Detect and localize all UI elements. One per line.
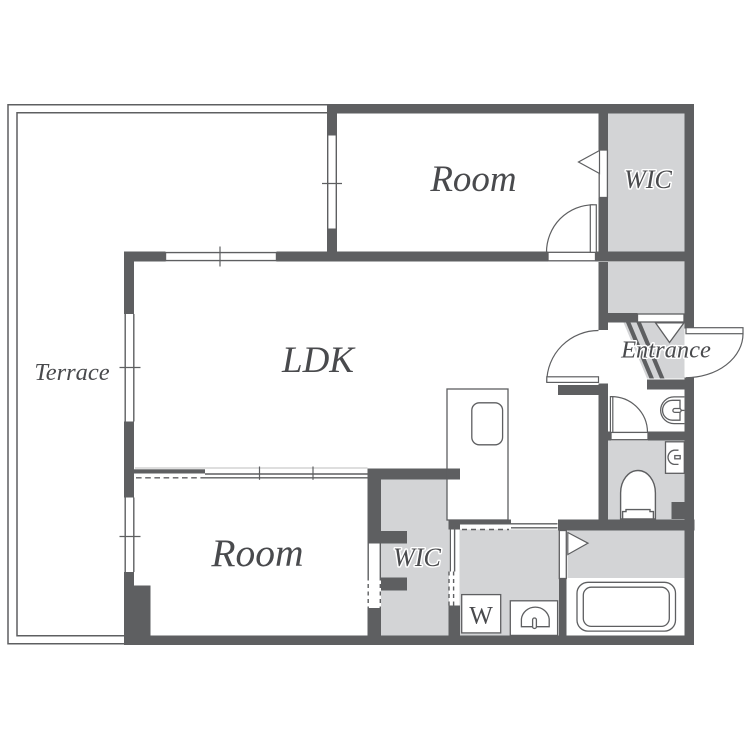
svg-text:WIC: WIC: [393, 543, 441, 572]
svg-text:W: W: [469, 603, 493, 630]
svg-text:Entrance: Entrance: [620, 337, 711, 364]
svg-text:Room: Room: [429, 159, 516, 200]
svg-text:WIC: WIC: [624, 165, 672, 194]
svg-text:Terrace: Terrace: [34, 359, 109, 386]
svg-text:LDK: LDK: [281, 340, 356, 381]
svg-text:Room: Room: [210, 531, 303, 575]
